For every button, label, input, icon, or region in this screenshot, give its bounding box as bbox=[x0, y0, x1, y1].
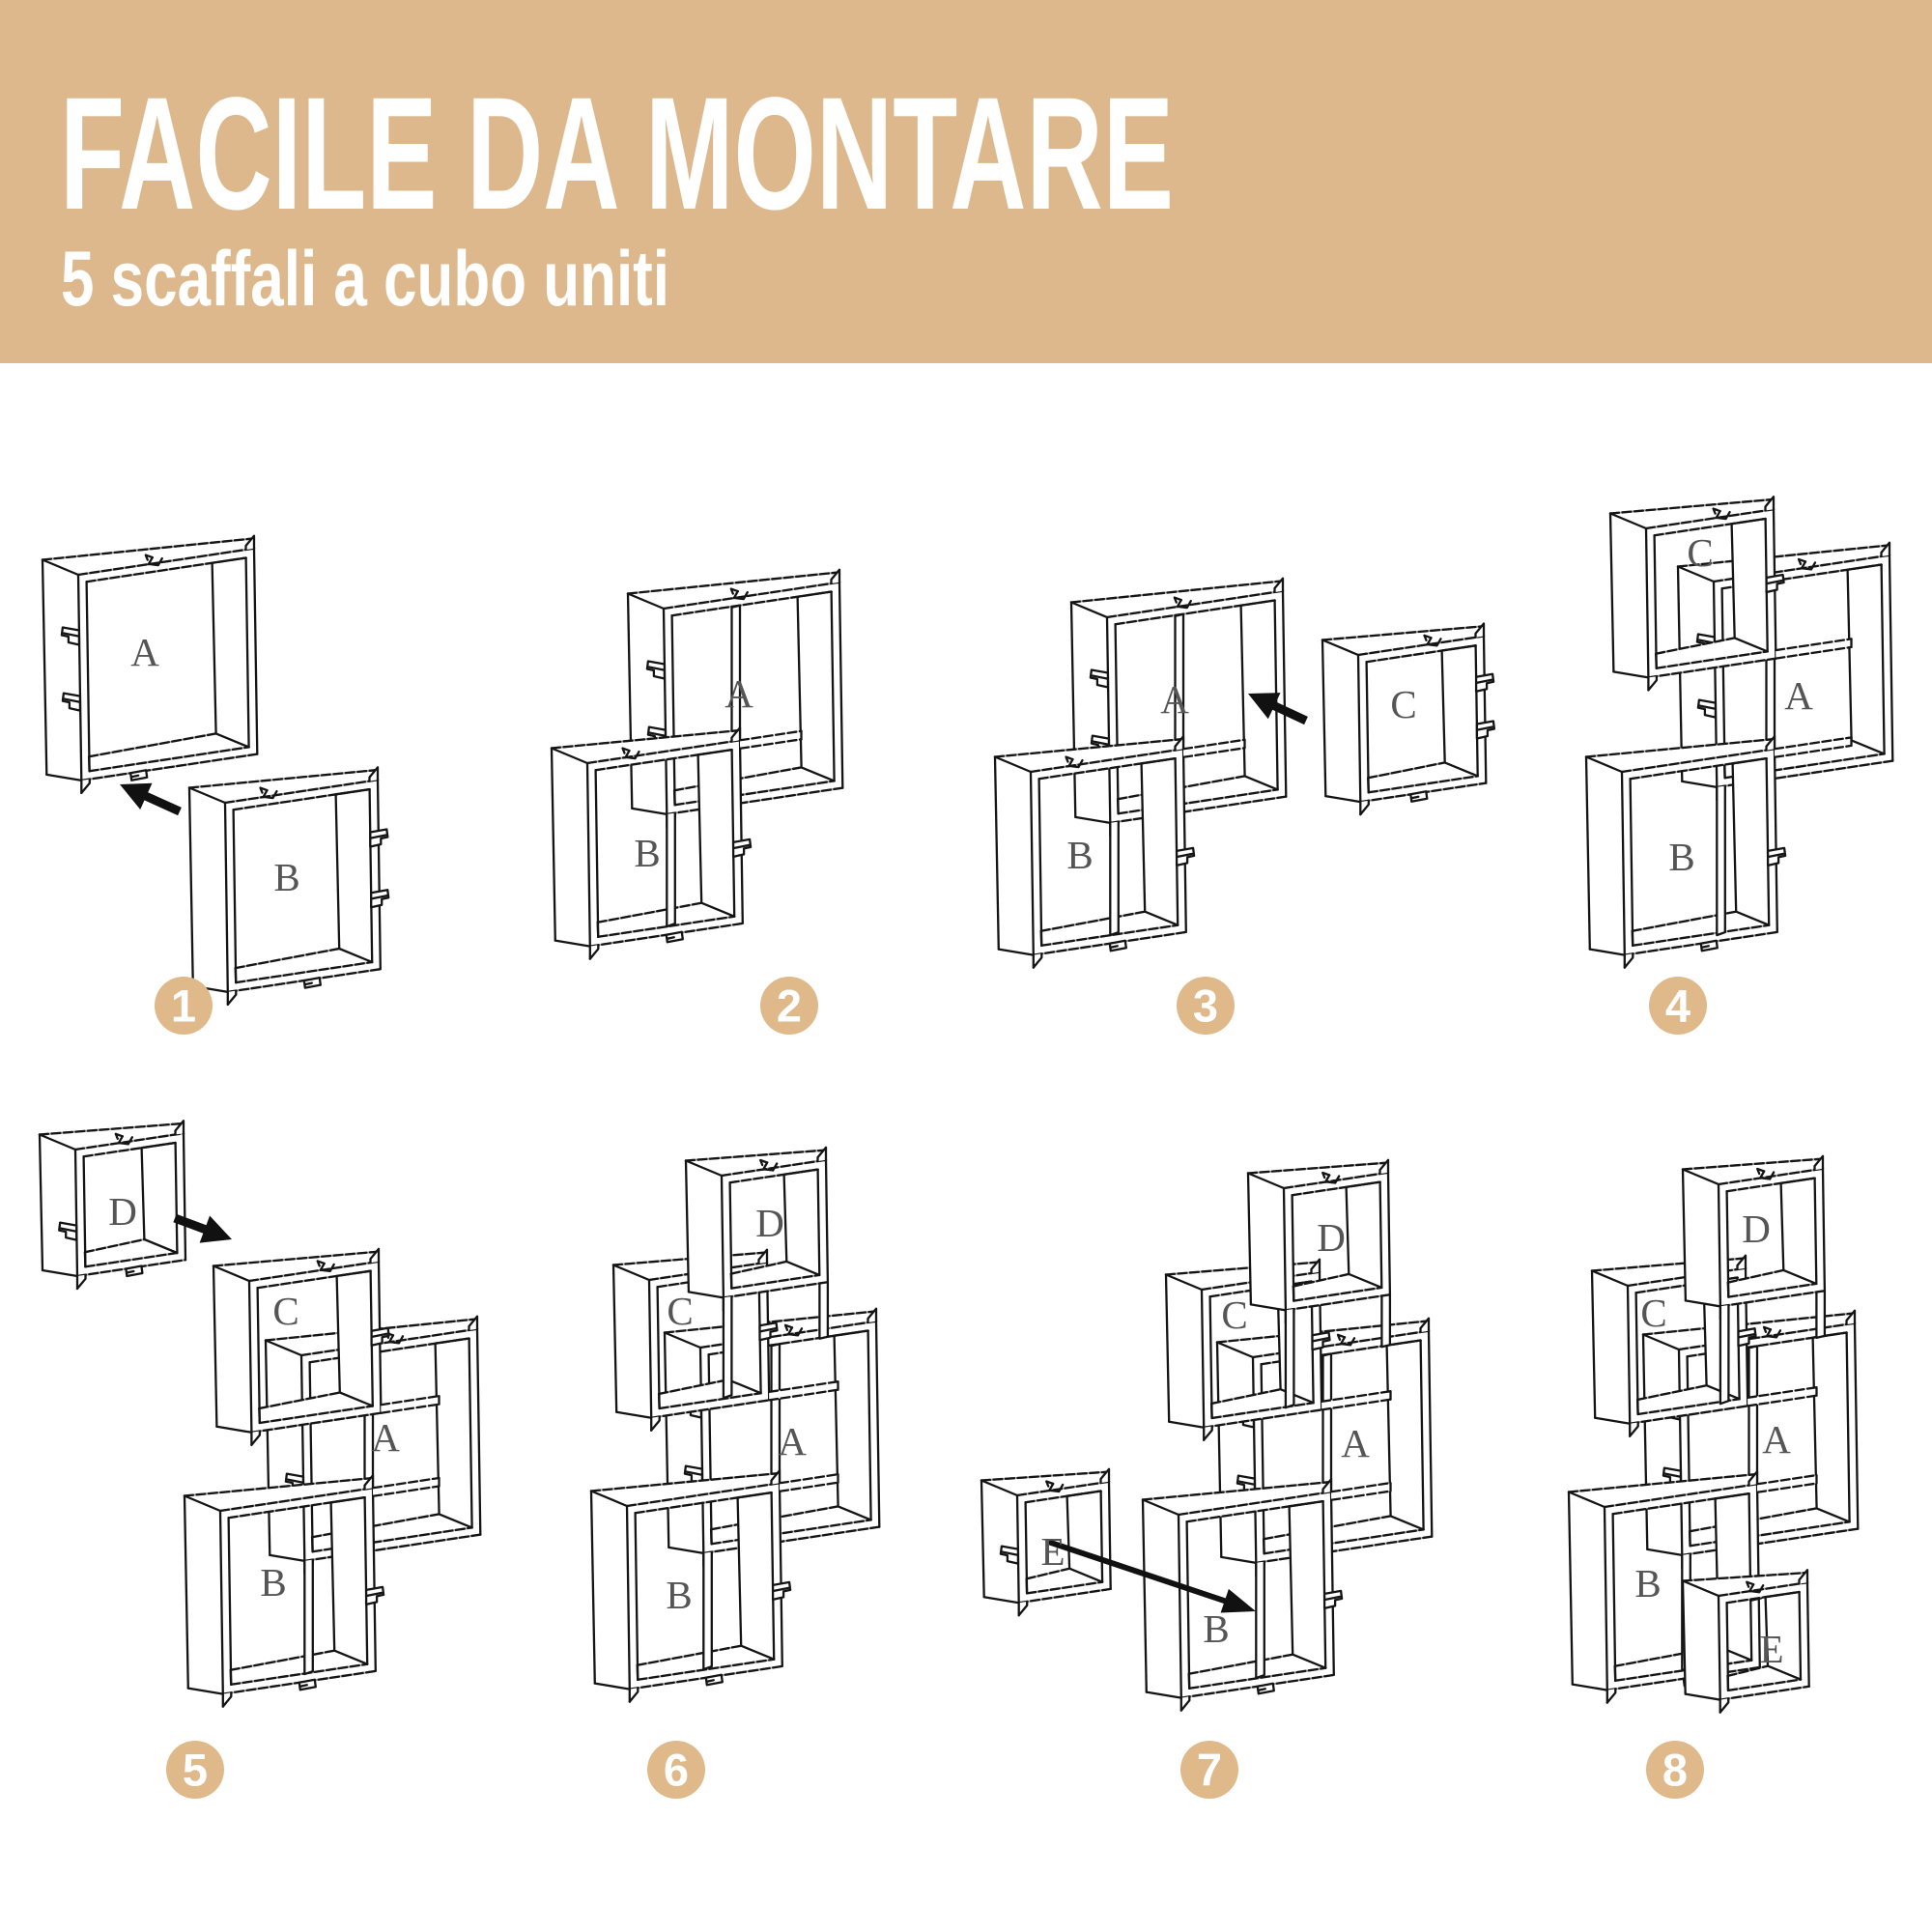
svg-text:A: A bbox=[724, 671, 753, 716]
svg-text:8: 8 bbox=[1662, 1745, 1688, 1796]
svg-text:2: 2 bbox=[777, 980, 802, 1032]
svg-text:A: A bbox=[1160, 677, 1189, 722]
svg-text:D: D bbox=[108, 1189, 137, 1234]
svg-text:C: C bbox=[667, 1289, 693, 1333]
svg-text:B: B bbox=[1203, 1606, 1229, 1651]
svg-text:D: D bbox=[755, 1201, 784, 1245]
svg-text:C: C bbox=[1640, 1291, 1666, 1335]
svg-text:E: E bbox=[1040, 1529, 1065, 1574]
svg-text:D: D bbox=[1317, 1215, 1346, 1260]
svg-text:A: A bbox=[1341, 1421, 1370, 1465]
svg-text:A: A bbox=[130, 630, 159, 674]
svg-text:3: 3 bbox=[1193, 980, 1218, 1032]
svg-text:C: C bbox=[1390, 682, 1416, 726]
svg-text:1: 1 bbox=[171, 980, 196, 1032]
svg-text:FACILE DA MONTARE: FACILE DA MONTARE bbox=[60, 65, 1174, 243]
svg-text:B: B bbox=[1668, 835, 1694, 879]
svg-text:C: C bbox=[1687, 530, 1713, 575]
svg-text:4: 4 bbox=[1665, 980, 1690, 1032]
svg-text:B: B bbox=[666, 1573, 692, 1617]
svg-text:B: B bbox=[273, 855, 299, 899]
svg-text:B: B bbox=[634, 831, 660, 875]
svg-text:B: B bbox=[260, 1560, 286, 1605]
svg-text:E: E bbox=[1759, 1627, 1783, 1671]
svg-text:B: B bbox=[1066, 833, 1093, 877]
svg-text:7: 7 bbox=[1197, 1745, 1222, 1796]
svg-text:A: A bbox=[1784, 673, 1813, 718]
svg-text:6: 6 bbox=[664, 1745, 689, 1796]
svg-text:A: A bbox=[1762, 1417, 1791, 1462]
svg-text:C: C bbox=[1221, 1293, 1247, 1337]
svg-text:A: A bbox=[371, 1415, 400, 1460]
svg-text:D: D bbox=[1742, 1207, 1771, 1251]
svg-text:A: A bbox=[778, 1419, 807, 1463]
svg-text:5 scaffali a cubo uniti: 5 scaffali a cubo uniti bbox=[61, 236, 669, 323]
svg-text:B: B bbox=[1634, 1561, 1661, 1605]
svg-text:5: 5 bbox=[183, 1745, 208, 1796]
svg-text:C: C bbox=[272, 1289, 298, 1333]
